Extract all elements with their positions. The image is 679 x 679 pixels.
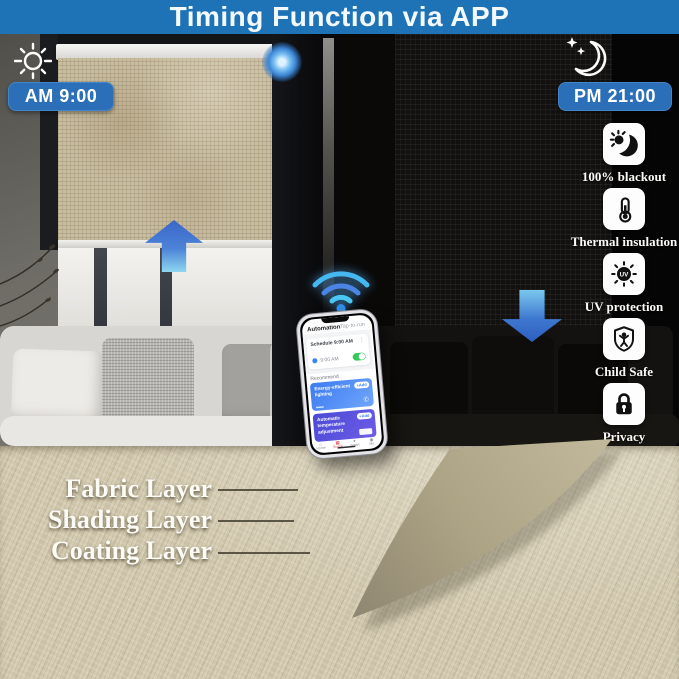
product-infographic: Timing Function via APP xyxy=(0,0,679,679)
night-time-badge: PM 21:00 xyxy=(558,82,672,111)
feature-privacy: Privacy xyxy=(569,383,679,445)
feature-blackout: 100% blackout xyxy=(569,123,679,185)
feature-label: Privacy xyxy=(603,429,646,445)
schedule-time: 9:00 AM xyxy=(320,356,339,363)
feature-label: Child Safe xyxy=(595,364,653,380)
nav-me[interactable]: ◉ Me xyxy=(363,437,381,446)
uv-icon-text: UV xyxy=(620,272,630,279)
day-time-label: AM 9:00 xyxy=(25,86,98,107)
feature-icon-box xyxy=(603,188,645,230)
phone-call-icon: ✆ xyxy=(363,395,369,403)
layer-label-shading: Shading Layer xyxy=(48,504,212,535)
schedule-type-icon xyxy=(312,358,317,363)
suggestion-title: Automatic temperature adjustment xyxy=(317,414,357,436)
feature-icon-box xyxy=(603,123,645,165)
feature-icon-box xyxy=(603,383,645,425)
wifi-icon xyxy=(305,264,377,314)
padlock-icon xyxy=(609,389,639,419)
night-time-label: PM 21:00 xyxy=(574,86,656,107)
add-button[interactable]: +Add xyxy=(357,412,373,420)
feature-uv: UV UV protection xyxy=(569,253,679,315)
feature-icon-box: UV xyxy=(603,253,645,295)
thermometer-icon xyxy=(609,194,639,224)
feature-icon-box xyxy=(603,318,645,360)
feature-child-safe: Child Safe xyxy=(569,318,679,380)
schedule-toggle[interactable] xyxy=(352,352,366,361)
day-time-badge: AM 9:00 xyxy=(8,82,114,111)
title-banner: Timing Function via APP xyxy=(0,0,679,34)
blackout-moon-icon xyxy=(609,129,639,159)
home-indicator xyxy=(337,446,355,449)
tab-tap-to-run[interactable]: Tap-to-run xyxy=(340,321,365,329)
uv-sun-icon: UV xyxy=(609,259,639,289)
feature-label: Thermal insulation xyxy=(571,234,678,250)
schedule-card[interactable]: Schedule 9:00 AM ⋮ 9:00 AM xyxy=(306,334,370,370)
child-shield-icon xyxy=(609,324,639,354)
add-button[interactable]: +Add xyxy=(354,381,370,389)
toggle-knob xyxy=(358,353,365,360)
coating-layer-pointer-line xyxy=(218,552,310,554)
moon-icon xyxy=(564,36,614,84)
sun-icon xyxy=(14,42,52,80)
shading-layer-pointer-line xyxy=(218,520,294,522)
fabric-layer-pointer-line xyxy=(218,489,298,491)
remote-illustration xyxy=(359,428,372,435)
layer-label-coating: Coating Layer xyxy=(51,535,212,566)
suggestion-card-lighting[interactable]: Energy-efficient lighting +Add ✆ xyxy=(310,378,374,411)
page-title: Timing Function via APP xyxy=(170,1,510,33)
schedule-title: Schedule 9:00 AM xyxy=(310,338,353,347)
nav-home[interactable]: ⌂ Home xyxy=(312,441,330,450)
phone-screen: Automation Tap-to-run Schedule 9:00 AM ⋮… xyxy=(301,314,382,454)
suggestion-title: Energy-efficient lighting xyxy=(314,383,354,399)
smartphone: Automation Tap-to-run Schedule 9:00 AM ⋮… xyxy=(296,309,388,459)
layer-label-fabric: Fabric Layer xyxy=(65,473,212,504)
feature-label: UV protection xyxy=(585,299,664,315)
sofa-seat xyxy=(0,416,306,446)
feature-thermal: Thermal insulation xyxy=(569,188,679,250)
card-decoration xyxy=(316,406,324,408)
layer-label-list: Fabric Layer Shading Layer Coating Layer xyxy=(0,473,212,566)
smart-motor-indicator xyxy=(262,42,302,82)
card-menu-icon[interactable]: ⋮ xyxy=(358,336,365,343)
feature-label: 100% blackout xyxy=(582,169,666,185)
